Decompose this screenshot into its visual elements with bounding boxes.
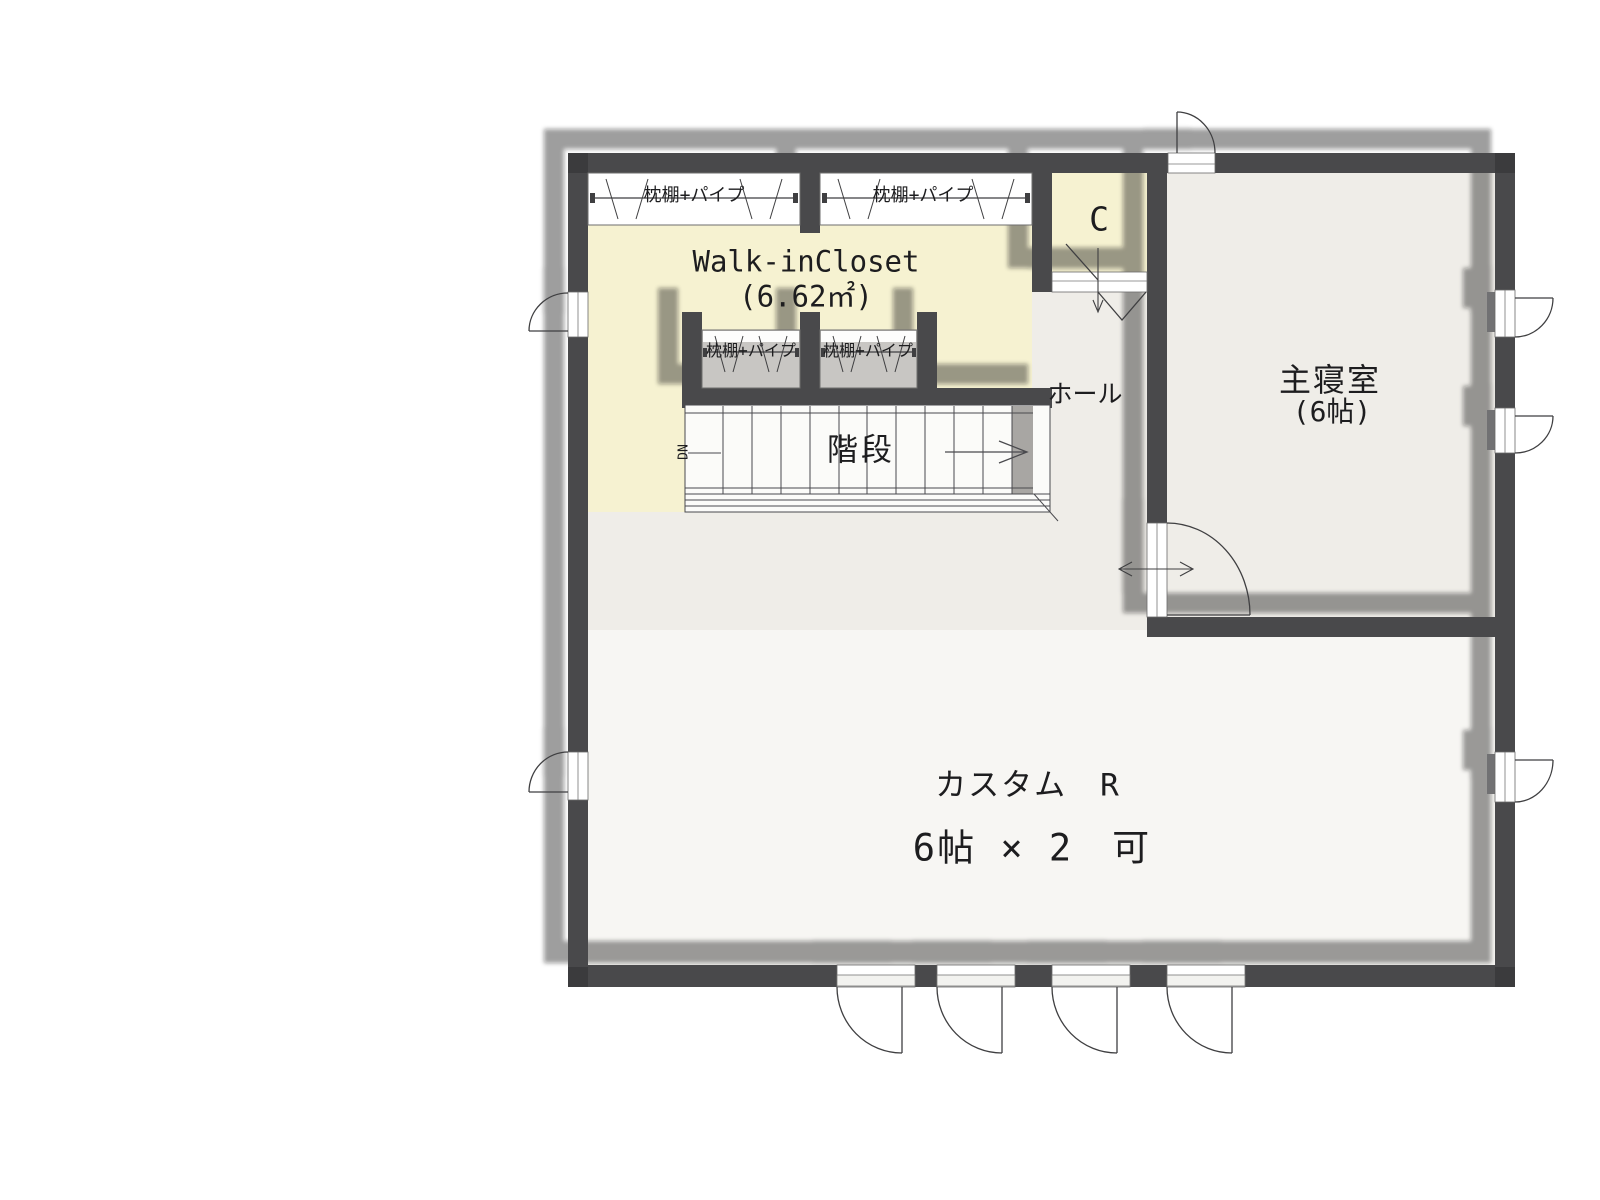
wic-room-label: Walk-inCloset [693, 248, 920, 277]
closet-c-label: C [1089, 203, 1109, 236]
closet-shelf-label-1: 枕棚+パイプ [644, 187, 745, 205]
door-swing-icon [1167, 987, 1232, 1053]
window-swing-icon [1515, 298, 1553, 337]
custom-room-size: 6帖 × 2 可 [913, 830, 1151, 867]
door-swing-icon [1052, 987, 1117, 1053]
window-swing-icon [1515, 760, 1553, 802]
stairs-down-label: DN [678, 444, 691, 460]
floorplan-drawing [0, 0, 1600, 1200]
custom-room-label: カスタム R [935, 771, 1121, 802]
closet-shelf-label-4: 枕棚+パイプ [823, 343, 913, 359]
door-swing-icon [1177, 112, 1215, 153]
closet-shelf-label-3: 枕棚+パイプ [706, 343, 796, 359]
wic-area-label: (6.62㎡) [739, 283, 873, 312]
hall-label: ホール [1047, 382, 1122, 407]
closet-shelf-label-2: 枕棚+パイプ [873, 187, 974, 205]
door-swing-icon [529, 293, 568, 331]
window-swing-icon [1515, 416, 1553, 453]
floor-wic-strip [588, 388, 685, 512]
master-bedroom-label: 主寝室 [1279, 364, 1381, 396]
stairs-label: 階段 [827, 436, 895, 467]
door-swing-icon [937, 987, 1002, 1053]
door-swing-icon [837, 987, 902, 1053]
master-bedroom-size: (6帖) [1293, 398, 1372, 426]
floorplan-page: 枕棚+パイプ 枕棚+パイプ 枕棚+パイプ 枕棚+パイプ Walk-inClose… [0, 0, 1600, 1200]
door-swing-icon [529, 752, 568, 792]
